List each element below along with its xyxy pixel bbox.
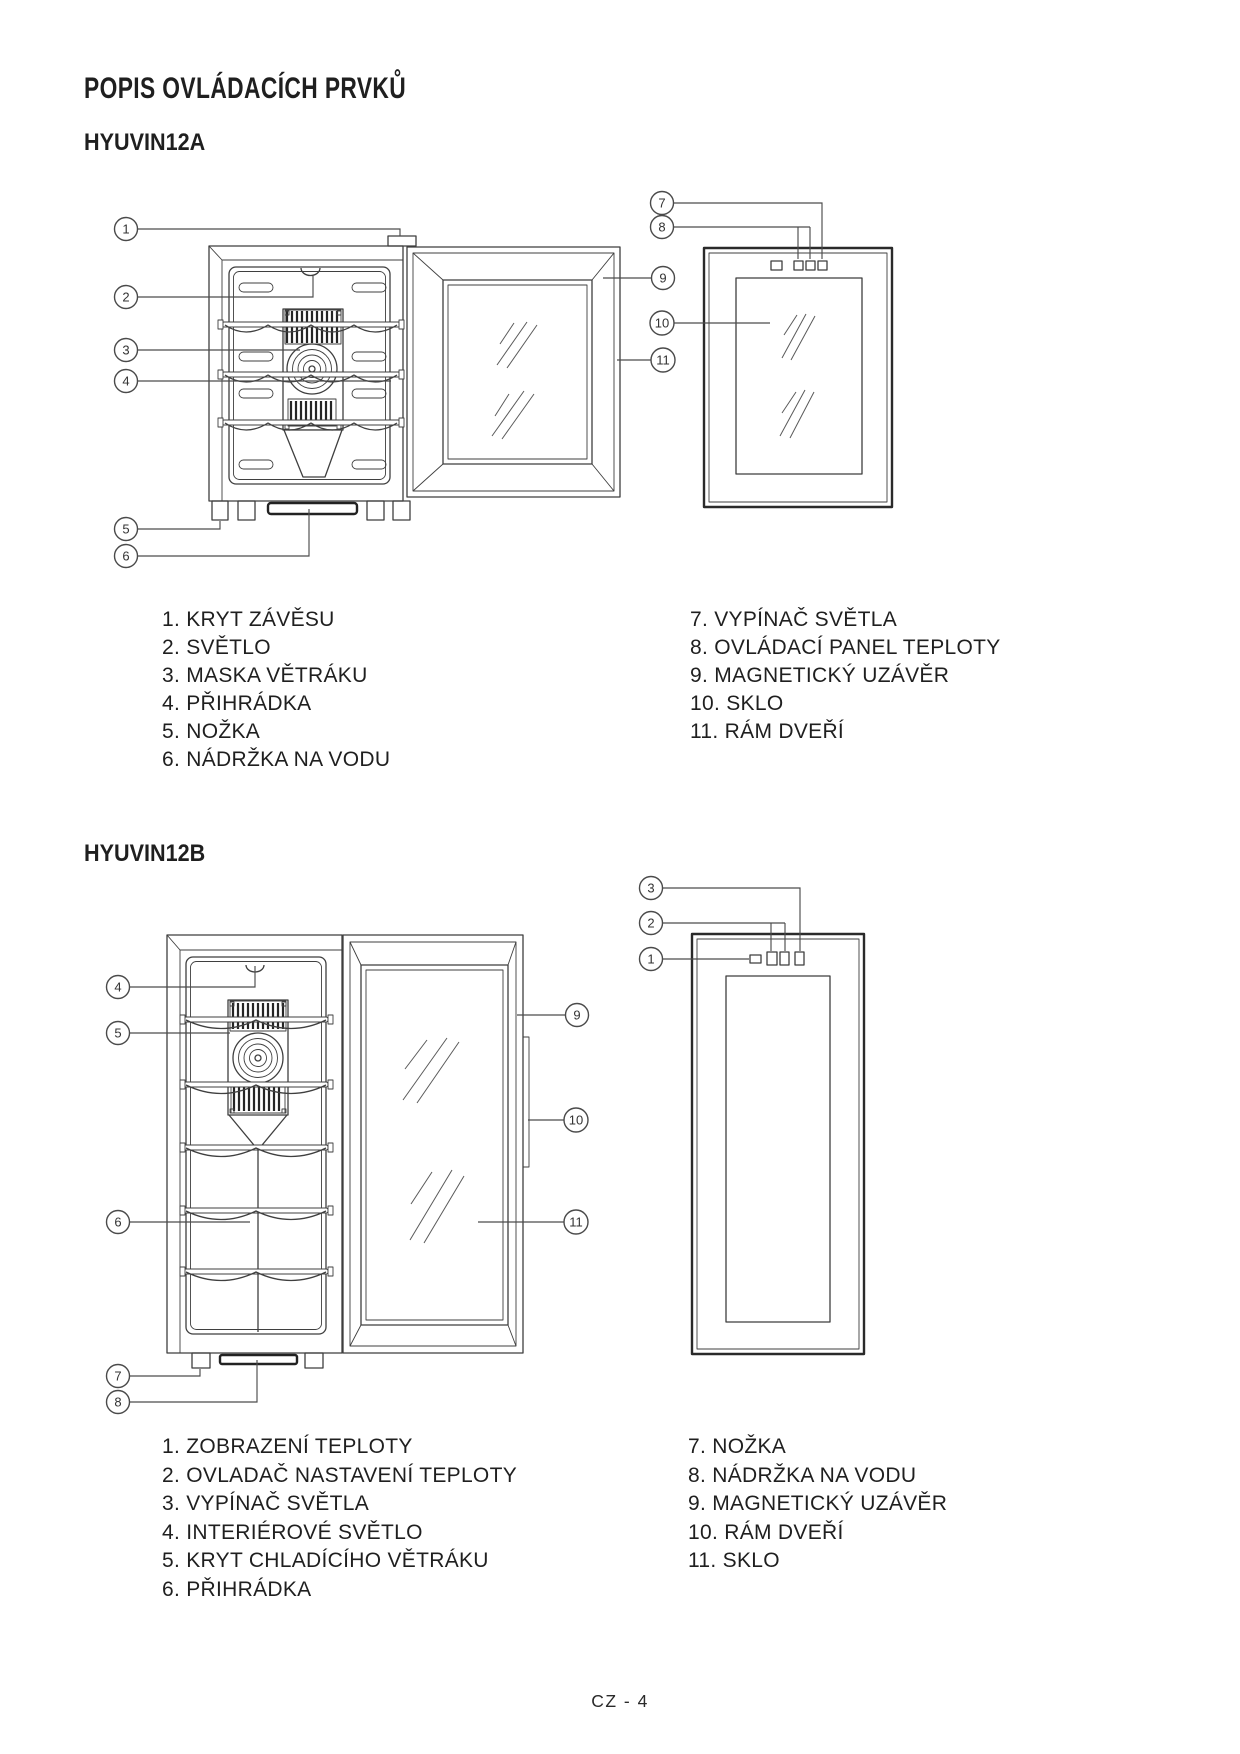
callout-b-2: 2 xyxy=(640,912,663,935)
callout-b-6: 6 xyxy=(107,1211,130,1234)
callout-b-4: 4 xyxy=(107,976,130,999)
page-title: POPIS OVLÁDACÍCH PRVKŮ xyxy=(84,72,406,106)
section-a-heading: HYUVIN12A xyxy=(84,129,205,157)
part-item: 11. RÁM DVEŘÍ xyxy=(690,718,1001,746)
part-item: 7. VYPÍNAČ SVĚTLA xyxy=(690,606,1001,634)
callout-b-9: 9 xyxy=(566,1004,589,1027)
svg-text:3: 3 xyxy=(647,881,654,896)
svg-text:11: 11 xyxy=(569,1215,583,1230)
door-b-glass xyxy=(361,965,508,1325)
parts-list-a-left: 1. KRYT ZÁVĚSU 2. SVĚTLO 3. MASKA VĚTRÁK… xyxy=(162,606,390,774)
parts-list-b-right: 7. NOŽKA 8. NÁDRŽKA NA VODU 9. MAGNETICK… xyxy=(688,1433,947,1576)
part-item: 8. NÁDRŽKA NA VODU xyxy=(688,1462,947,1491)
callout-b-7: 7 xyxy=(107,1365,130,1388)
shelf-b-3 xyxy=(180,1143,333,1157)
part-item: 10. SKLO xyxy=(690,690,1001,718)
callout-a-3: 3 xyxy=(115,339,138,362)
part-item: 9. MAGNETICKÝ UZÁVĚR xyxy=(688,1490,947,1519)
front-glass-b xyxy=(726,976,830,1322)
svg-text:9: 9 xyxy=(573,1008,580,1023)
callout-a-4: 4 xyxy=(115,370,138,393)
svg-text:9: 9 xyxy=(659,271,666,286)
callout-b-11: 11 xyxy=(564,1210,588,1234)
callout-a-9: 9 xyxy=(652,267,675,290)
part-item: 4. INTERIÉROVÉ SVĚTLO xyxy=(162,1519,517,1548)
part-item: 3. VYPÍNAČ SVĚTLA xyxy=(162,1490,517,1519)
svg-text:6: 6 xyxy=(122,549,129,564)
page-number: CZ - 4 xyxy=(0,1691,1240,1712)
cooling-fan-b xyxy=(233,1033,283,1083)
svg-text:5: 5 xyxy=(114,1026,121,1041)
part-item: 8. OVLÁDACÍ PANEL TEPLOTY xyxy=(690,634,1001,662)
water-tank-a xyxy=(268,503,357,514)
svg-text:1: 1 xyxy=(122,222,129,237)
svg-text:7: 7 xyxy=(114,1369,121,1384)
callout-a-11: 11 xyxy=(651,348,675,372)
hinge-cover-a xyxy=(388,236,416,246)
cooling-fan-a xyxy=(287,344,337,394)
temp-control-button-b-1 xyxy=(767,952,777,965)
part-item: 1. KRYT ZÁVĚSU xyxy=(162,606,390,634)
temperature-display-b xyxy=(750,955,761,963)
svg-text:10: 10 xyxy=(655,316,669,331)
svg-text:1: 1 xyxy=(647,952,654,967)
part-item: 4. PŘIHRÁDKA xyxy=(162,690,390,718)
part-item: 2. SVĚTLO xyxy=(162,634,390,662)
shelf-b-4 xyxy=(180,1206,333,1220)
svg-text:3: 3 xyxy=(122,343,129,358)
water-tank-b xyxy=(220,1355,297,1364)
callout-b-10: 10 xyxy=(564,1108,588,1132)
callout-b-3: 3 xyxy=(640,877,663,900)
part-item: 10. RÁM DVEŘÍ xyxy=(688,1519,947,1548)
svg-text:2: 2 xyxy=(647,916,654,931)
callout-b-8: 8 xyxy=(107,1391,130,1414)
air-funnel-a xyxy=(284,430,342,477)
callout-a-10: 10 xyxy=(650,311,674,335)
diagram-hyuvin12a: 1 2 3 4 5 6 7 8 9 10 11 xyxy=(90,170,900,570)
callouts-a: 1 2 3 4 5 6 7 8 9 10 11 xyxy=(115,192,676,568)
callout-a-2: 2 xyxy=(115,286,138,309)
panel-button-a-2 xyxy=(806,261,815,270)
part-item: 1. ZOBRAZENÍ TEPLOTY xyxy=(162,1433,517,1462)
door-a-glass xyxy=(443,280,592,464)
door-b-edge-strip xyxy=(523,1037,529,1167)
callout-leaders-a xyxy=(137,203,822,556)
callout-b-5: 5 xyxy=(107,1022,130,1045)
front-glass-a xyxy=(736,278,862,474)
part-item: 2. OVLADAČ NASTAVENÍ TEPLOTY xyxy=(162,1462,517,1491)
callout-a-5: 5 xyxy=(115,518,138,541)
callout-a-1: 1 xyxy=(115,218,138,241)
part-item: 9. MAGNETICKÝ UZÁVĚR xyxy=(690,662,1001,690)
svg-text:6: 6 xyxy=(114,1215,121,1230)
cooler-b-open-door xyxy=(343,935,529,1353)
callout-a-7: 7 xyxy=(651,192,674,215)
callout-a-8: 8 xyxy=(651,216,674,239)
part-item: 5. NOŽKA xyxy=(162,718,390,746)
cooler-b-door-front xyxy=(692,934,864,1354)
parts-list-b-left: 1. ZOBRAZENÍ TEPLOTY 2. OVLADAČ NASTAVEN… xyxy=(162,1433,517,1605)
panel-button-a-1 xyxy=(794,261,803,270)
part-item: 3. MASKA VĚTRÁKU xyxy=(162,662,390,690)
svg-text:11: 11 xyxy=(656,353,670,368)
svg-text:8: 8 xyxy=(658,220,665,235)
light-switch-button-b xyxy=(795,952,804,965)
svg-text:2: 2 xyxy=(122,290,129,305)
part-item: 11. SKLO xyxy=(688,1547,947,1576)
svg-text:10: 10 xyxy=(569,1113,583,1128)
diagram-hyuvin12b: 3 2 1 4 5 6 7 8 9 10 11 xyxy=(90,780,900,1420)
temp-control-button-b-2 xyxy=(780,952,789,965)
shelf-b-2 xyxy=(180,1080,333,1094)
svg-text:4: 4 xyxy=(122,374,129,389)
svg-text:7: 7 xyxy=(658,196,665,211)
cooler-a-open-door xyxy=(407,247,620,497)
shelf-b-5 xyxy=(180,1267,333,1281)
temperature-display-a xyxy=(771,261,782,270)
callout-a-6: 6 xyxy=(115,545,138,568)
svg-text:8: 8 xyxy=(114,1395,121,1410)
cooler-a-door-front xyxy=(704,248,892,507)
callout-b-1: 1 xyxy=(640,948,663,971)
shelf-a-3 xyxy=(218,418,404,430)
svg-text:5: 5 xyxy=(122,522,129,537)
svg-text:4: 4 xyxy=(114,980,121,995)
shelf-b-1 xyxy=(180,1015,333,1029)
light-switch-button-a xyxy=(818,261,827,270)
cooler-b-cabinet xyxy=(167,935,342,1368)
part-item: 7. NOŽKA xyxy=(688,1433,947,1462)
part-item: 6. PŘIHRÁDKA xyxy=(162,1576,517,1605)
manual-page: POPIS OVLÁDACÍCH PRVKŮ HYUVIN12A xyxy=(0,0,1240,1754)
part-item: 6. NÁDRŽKA NA VODU xyxy=(162,746,390,774)
parts-list-a-right: 7. VYPÍNAČ SVĚTLA 8. OVLÁDACÍ PANEL TEPL… xyxy=(690,606,1001,746)
part-item: 5. KRYT CHLADÍCÍHO VĚTRÁKU xyxy=(162,1547,517,1576)
